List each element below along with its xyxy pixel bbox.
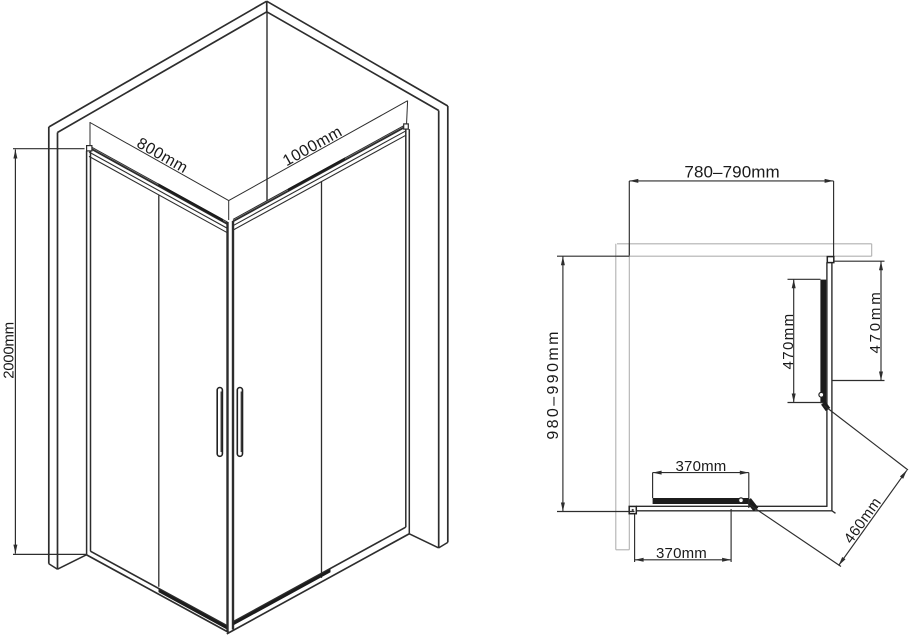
svg-text:2000mm: 2000mm xyxy=(0,322,17,379)
svg-text:980–990mm: 980–990mm xyxy=(545,329,562,440)
svg-text:370mm: 370mm xyxy=(675,458,726,475)
svg-text:470mm: 470mm xyxy=(867,289,884,353)
svg-text:470mm: 470mm xyxy=(780,312,797,369)
svg-text:370mm: 370mm xyxy=(656,545,707,562)
svg-text:780–790mm: 780–790mm xyxy=(684,162,779,181)
